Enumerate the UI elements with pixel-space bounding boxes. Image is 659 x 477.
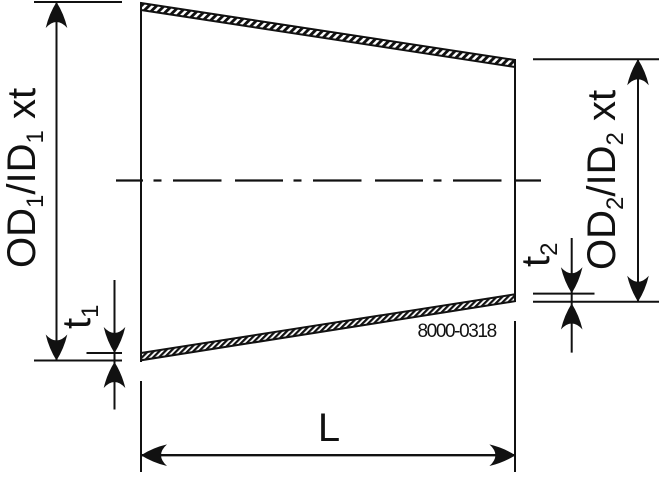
svg-text:OD1/ID1 xt: OD1/ID1 xt [0, 88, 49, 268]
svg-text:L: L [318, 406, 340, 450]
svg-text:OD2/ID2 xt: OD2/ID2 xt [580, 90, 629, 270]
svg-text:8000-0318: 8000-0318 [418, 321, 497, 342]
